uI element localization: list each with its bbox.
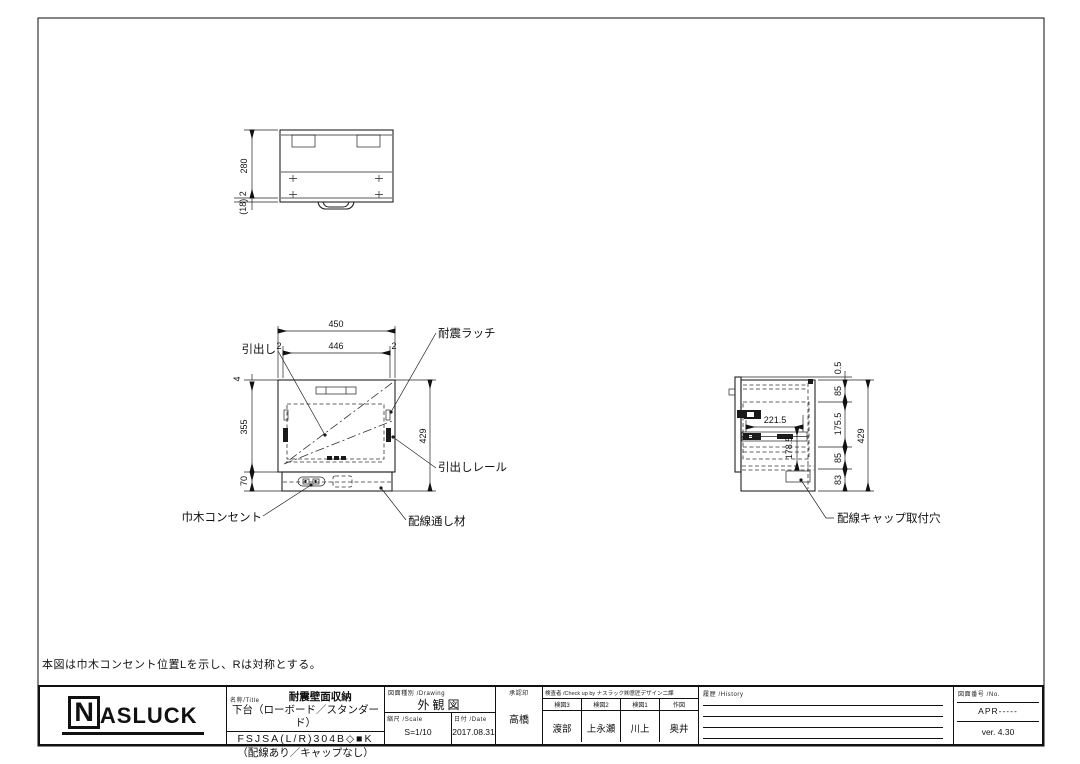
label-drawer: 引出し — [242, 342, 277, 356]
checkers-label: 検査者 /Check up by ナスラック㈱意匠デザイン二課 — [543, 687, 698, 697]
drawing-type-cell: 図面種別 /Drawing 外観図 縮尺 /Scale S=1/10 日付 /D… — [385, 687, 496, 744]
number-label: 図面番号 /No. — [954, 687, 1042, 698]
checker-2-role: 検図2 — [582, 699, 620, 711]
logo-cell: NASLUCK — [40, 687, 227, 744]
history-row-line — [703, 727, 943, 728]
label-outlet: 巾木コンセント — [182, 510, 263, 524]
dim-side-inner-h: 178.5 — [784, 437, 794, 460]
history-row-line — [703, 705, 943, 706]
date-value: 2017.08.31 — [452, 727, 495, 737]
title-block: NASLUCK 名称/Title 耐震壁面収納 下台（ローボード／スタンダード）… — [38, 685, 1044, 746]
dim-side-height: 429 — [856, 428, 866, 443]
product-code-note: （配線あり／キャップなし） — [227, 747, 384, 760]
drawing-type-value: 外観図 — [385, 696, 495, 713]
cad-drawing-sheet: { "note": "本図は巾木コンセント位置Lを示し、Rは対称とする。", "… — [0, 0, 1080, 764]
drafter-role: 作図 — [660, 699, 698, 711]
dim-top-depth: 280 — [239, 158, 249, 173]
approval-cell: 承認印 高橋 — [496, 687, 543, 744]
history-row-line — [703, 738, 943, 739]
date-cell: 日付 /Date 2017.08.31 — [452, 713, 495, 744]
logo-letter-n: N — [68, 696, 100, 729]
dim-side-s3: 85 — [833, 453, 843, 463]
product-title-line2: 下台（ローボード／スタンダード） — [227, 704, 384, 730]
sheet-frame — [38, 18, 1044, 746]
number-cell: 図面番号 /No. APR----- ver. 4.30 — [954, 687, 1042, 744]
dim-front-inner: 446 — [328, 341, 343, 351]
number-value: APR----- — [954, 706, 1042, 716]
history-row-line — [703, 716, 943, 717]
product-code: FSJSA(L/R)304B◇■K — [227, 732, 384, 747]
dim-front-top: 4 — [232, 376, 242, 381]
dim-side-s2: 175.5 — [833, 413, 843, 436]
label-wire: 配線通し材 — [408, 514, 466, 528]
dim-front-plinth: 70 — [239, 476, 249, 486]
name-label: 名称/Title — [230, 695, 260, 704]
label-latch: 耐震ラッチ — [438, 327, 496, 340]
drawing-canvas: 280 (18) 2 450 2 44 — [0, 0, 1080, 764]
dim-side-rail: 221.5 — [764, 415, 787, 425]
history-cell: 履歴 /History — [699, 687, 954, 744]
approval-name: 高橋 — [496, 711, 542, 726]
checker-1-name: 川上 — [621, 711, 659, 735]
checker-2-name: 上永瀬 — [582, 711, 620, 735]
checker-1: 検図1 川上 — [621, 699, 660, 742]
dim-side-s1: 85 — [833, 386, 843, 396]
history-label: 履歴 /History — [699, 687, 953, 698]
drawing-note: 本図は巾木コンセント位置Lを示し、Rは対称とする。 — [42, 656, 321, 672]
checker-3-role: 検図3 — [543, 699, 581, 711]
checker-2: 検図2 上永瀬 — [582, 699, 621, 742]
dim-top-front: (18) 2 — [238, 191, 248, 215]
front-view: 450 2 446 2 4 355 70 429 引出し 耐震ラッチ 引出しレー… — [182, 319, 508, 528]
product-title-line1: 耐震壁面収納 — [260, 689, 381, 704]
dim-side-s4: 83 — [833, 475, 843, 485]
number-divider — [957, 721, 1039, 722]
dim-front-height: 429 — [418, 428, 428, 443]
date-label: 日付 /Date — [452, 713, 495, 723]
label-rail: 引出しレール — [438, 460, 507, 474]
drafter: 作図 奥井 — [660, 699, 698, 742]
nasluck-logo: NASLUCK — [62, 696, 203, 735]
title-cell: 名称/Title 耐震壁面収納 下台（ローボード／スタンダード） FSJSA(L… — [227, 687, 385, 744]
side-view: 221.5 178.5 0.5 85 175.5 85 83 429 配線キャッ… — [729, 362, 941, 525]
dim-side-gap: 0.5 — [833, 362, 843, 375]
checker-3-name: 渡部 — [543, 711, 581, 735]
label-cap-hole: 配線キャップ取付穴 — [837, 511, 941, 525]
number-divider — [957, 702, 1039, 703]
scale-cell: 縮尺 /Scale S=1/10 — [385, 713, 452, 744]
checkers-cell: 検査者 /Check up by ナスラック㈱意匠デザイン二課 検図3 渡部 検… — [543, 687, 699, 744]
scale-label: 縮尺 /Scale — [385, 713, 451, 723]
version-value: ver. 4.30 — [954, 727, 1042, 737]
checker-1-role: 検図1 — [621, 699, 659, 711]
logo-wordmark: ASLUCK — [100, 703, 198, 728]
checker-3: 検図3 渡部 — [543, 699, 582, 742]
scale-value: S=1/10 — [385, 727, 451, 737]
dim-front-edge-l: 2 — [276, 341, 281, 351]
drafter-name: 奥井 — [660, 711, 698, 735]
dim-front-body: 355 — [239, 419, 249, 434]
dim-front-width: 450 — [328, 319, 343, 329]
top-view: 280 (18) 2 — [234, 130, 393, 215]
approval-label: 承認印 — [496, 687, 542, 697]
dim-front-edge-r: 2 — [391, 341, 396, 351]
front-callouts: 引出し 耐震ラッチ 引出しレール 巾木コンセント 配線通し材 — [182, 327, 508, 528]
